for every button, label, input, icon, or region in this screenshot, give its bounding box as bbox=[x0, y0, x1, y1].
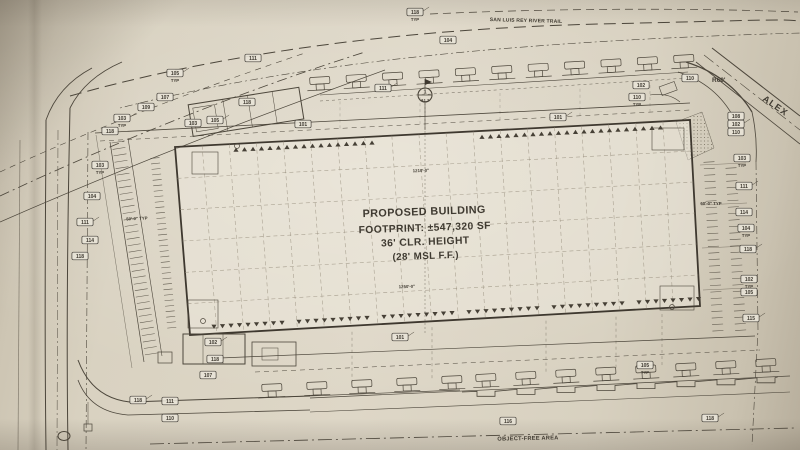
callout-number: 118 bbox=[134, 398, 142, 404]
callout: 111 bbox=[77, 217, 99, 226]
callout: 108 bbox=[728, 112, 744, 120]
trailer-stall bbox=[473, 373, 500, 387]
callout: 118 bbox=[130, 395, 152, 404]
site-plan-drawing: PROPOSED BUILDING FOOTPRINT: ±547,320 SF… bbox=[0, 0, 800, 450]
trail-label: SAN LUIS REY RIVER TRAIL bbox=[490, 17, 563, 25]
callout-suffix: TYP bbox=[96, 170, 104, 175]
callout-number: 103 bbox=[118, 116, 127, 122]
callout: 102 bbox=[205, 337, 227, 346]
section-marker-number: 1 bbox=[423, 90, 426, 96]
callout: 110TYP bbox=[629, 93, 645, 107]
trailer-stalls-south-west bbox=[259, 375, 466, 397]
callout: 111 bbox=[736, 181, 758, 190]
callout: 114 bbox=[736, 208, 752, 216]
section-marker-sheet: A1.2 bbox=[421, 98, 430, 103]
callout-number: 101 bbox=[299, 122, 308, 128]
callout: 101 bbox=[392, 332, 414, 341]
callout-number: 111 bbox=[379, 86, 387, 92]
callout: 110 bbox=[682, 74, 698, 82]
callout: 107 bbox=[157, 93, 173, 101]
trailer-stall bbox=[553, 369, 580, 383]
callout-number: 118 bbox=[106, 129, 114, 135]
callout-number: 102 bbox=[732, 122, 741, 128]
callout: 101 bbox=[295, 120, 311, 128]
callout: 118 bbox=[207, 355, 223, 363]
callout-suffix: TYP bbox=[171, 78, 179, 83]
site-plan-photo: PROPOSED BUILDING FOOTPRINT: ±547,320 SF… bbox=[0, 0, 800, 450]
trailer-stall bbox=[439, 375, 466, 389]
callout: 110 bbox=[728, 128, 744, 136]
trailer-stall bbox=[343, 74, 370, 89]
callout: 114 bbox=[82, 236, 98, 244]
callout-number: 111 bbox=[249, 56, 257, 62]
callout-number: 102 bbox=[209, 340, 218, 346]
callout-number: 118 bbox=[211, 357, 219, 363]
callout-number: 104 bbox=[742, 226, 751, 232]
callout-number: 118 bbox=[706, 416, 714, 422]
callout: 109 bbox=[138, 103, 154, 111]
dimension-text: 60'-0" TYP bbox=[700, 201, 721, 206]
dimension-text: 1210'-0" bbox=[413, 168, 430, 174]
trailer-stall bbox=[525, 63, 552, 78]
callout-number: 101 bbox=[396, 335, 405, 341]
callout-number: 103 bbox=[189, 121, 198, 127]
callout: 118 bbox=[72, 252, 88, 260]
callout-number: 109 bbox=[142, 105, 151, 111]
trailer-stall bbox=[634, 56, 661, 71]
callout: 104 bbox=[84, 192, 100, 200]
trailer-stall bbox=[489, 65, 516, 80]
callout-number: 118 bbox=[744, 247, 752, 253]
callout: 118 bbox=[102, 127, 118, 135]
callout: 103 bbox=[185, 119, 201, 127]
callout: 111 bbox=[245, 54, 261, 62]
callout-number: 105 bbox=[171, 71, 180, 77]
proposed-building: PROPOSED BUILDING FOOTPRINT: ±547,320 SF… bbox=[175, 103, 701, 335]
dimension-text: 1250'-0" bbox=[399, 284, 416, 290]
callout-number: 107 bbox=[204, 373, 213, 379]
callout: 110 bbox=[162, 414, 178, 422]
callout-suffix: TYP bbox=[118, 123, 126, 128]
callout: 118 bbox=[740, 244, 762, 253]
callout: 104TYP bbox=[738, 224, 754, 238]
callout-number: 110 bbox=[732, 130, 740, 136]
callout-number: 118 bbox=[243, 100, 251, 106]
callout-number: 104 bbox=[444, 38, 453, 44]
callout-number: 105 bbox=[211, 118, 220, 124]
trailer-stall bbox=[259, 383, 286, 397]
callout: 111 bbox=[162, 397, 178, 405]
callout: 105TYP bbox=[167, 68, 189, 83]
callout: 103TYP bbox=[92, 161, 108, 175]
callout-number: 111 bbox=[166, 399, 174, 405]
trailer-stall bbox=[513, 371, 540, 385]
r60-curve bbox=[686, 62, 752, 112]
callout: 103TYP bbox=[114, 113, 136, 128]
callout-number: 118 bbox=[411, 10, 419, 16]
callout-number: 110 bbox=[686, 76, 694, 82]
callout: 107 bbox=[200, 371, 216, 379]
trailer-stall bbox=[304, 381, 331, 395]
callout-number: 104 bbox=[88, 194, 97, 200]
road-left bbox=[18, 62, 122, 450]
callout: 102 bbox=[728, 119, 750, 128]
callout: 103TYP bbox=[734, 154, 750, 168]
callout-suffix: TYP bbox=[738, 163, 746, 168]
dimension-text: 50'-0" TYP bbox=[126, 215, 148, 221]
callout-number: 111 bbox=[740, 184, 748, 190]
callout-number: 114 bbox=[740, 210, 748, 216]
trailer-stall bbox=[307, 76, 334, 91]
callout-number: 105 bbox=[641, 363, 650, 369]
callout: 118TYP bbox=[407, 7, 429, 22]
trailer-stall bbox=[673, 363, 700, 377]
callout: 118 bbox=[702, 413, 724, 422]
callout-number: 102 bbox=[745, 277, 754, 283]
guard-house-cluster bbox=[158, 334, 296, 366]
callout-number: 103 bbox=[96, 163, 105, 169]
callout-suffix: TYP bbox=[411, 17, 419, 22]
callout-number: 107 bbox=[161, 95, 170, 101]
trailer-stall bbox=[452, 67, 479, 82]
callout-suffix: TYP bbox=[641, 370, 649, 375]
building-finish-floor: (28' MSL F.F.) bbox=[392, 250, 459, 263]
callout: 116 bbox=[500, 417, 516, 425]
object-free-label: OBJECT-FREE AREA bbox=[497, 435, 558, 442]
radius-label: R60' bbox=[712, 77, 726, 84]
small-outbuilding bbox=[188, 87, 304, 136]
callout-suffix: TYP bbox=[742, 233, 750, 238]
callout-suffix: TYP bbox=[633, 102, 641, 107]
south-yard bbox=[58, 314, 795, 444]
callout-number: 105 bbox=[745, 290, 754, 296]
trailer-stall bbox=[598, 59, 625, 74]
callout-number: 114 bbox=[86, 238, 94, 244]
callout: 104 bbox=[440, 36, 456, 44]
callout-number: 108 bbox=[732, 114, 741, 120]
callout: 115 bbox=[743, 313, 765, 322]
trailer-stall bbox=[349, 379, 376, 393]
callout-number: 115 bbox=[747, 316, 755, 322]
callout-number: 103 bbox=[738, 156, 747, 162]
trailer-stall bbox=[713, 360, 740, 374]
trailer-stall bbox=[561, 61, 588, 76]
callout: 102TYP bbox=[741, 275, 757, 289]
callout-number: 110 bbox=[166, 416, 174, 422]
callout-number: 110 bbox=[633, 95, 641, 101]
callout: 118 bbox=[239, 98, 255, 106]
callout: 105 bbox=[741, 288, 757, 296]
trailer-stall bbox=[593, 367, 620, 381]
callout-number: 111 bbox=[81, 220, 89, 226]
callout-number: 101 bbox=[554, 115, 563, 121]
callout: 102 bbox=[633, 81, 649, 89]
trailer-stall bbox=[671, 54, 698, 69]
callout-number: 116 bbox=[504, 419, 512, 425]
dock-curb-line bbox=[462, 377, 778, 397]
callout-number: 118 bbox=[76, 254, 84, 260]
callout-number: 102 bbox=[637, 83, 646, 89]
trailer-stall bbox=[394, 377, 421, 391]
object-free-line bbox=[150, 428, 795, 444]
